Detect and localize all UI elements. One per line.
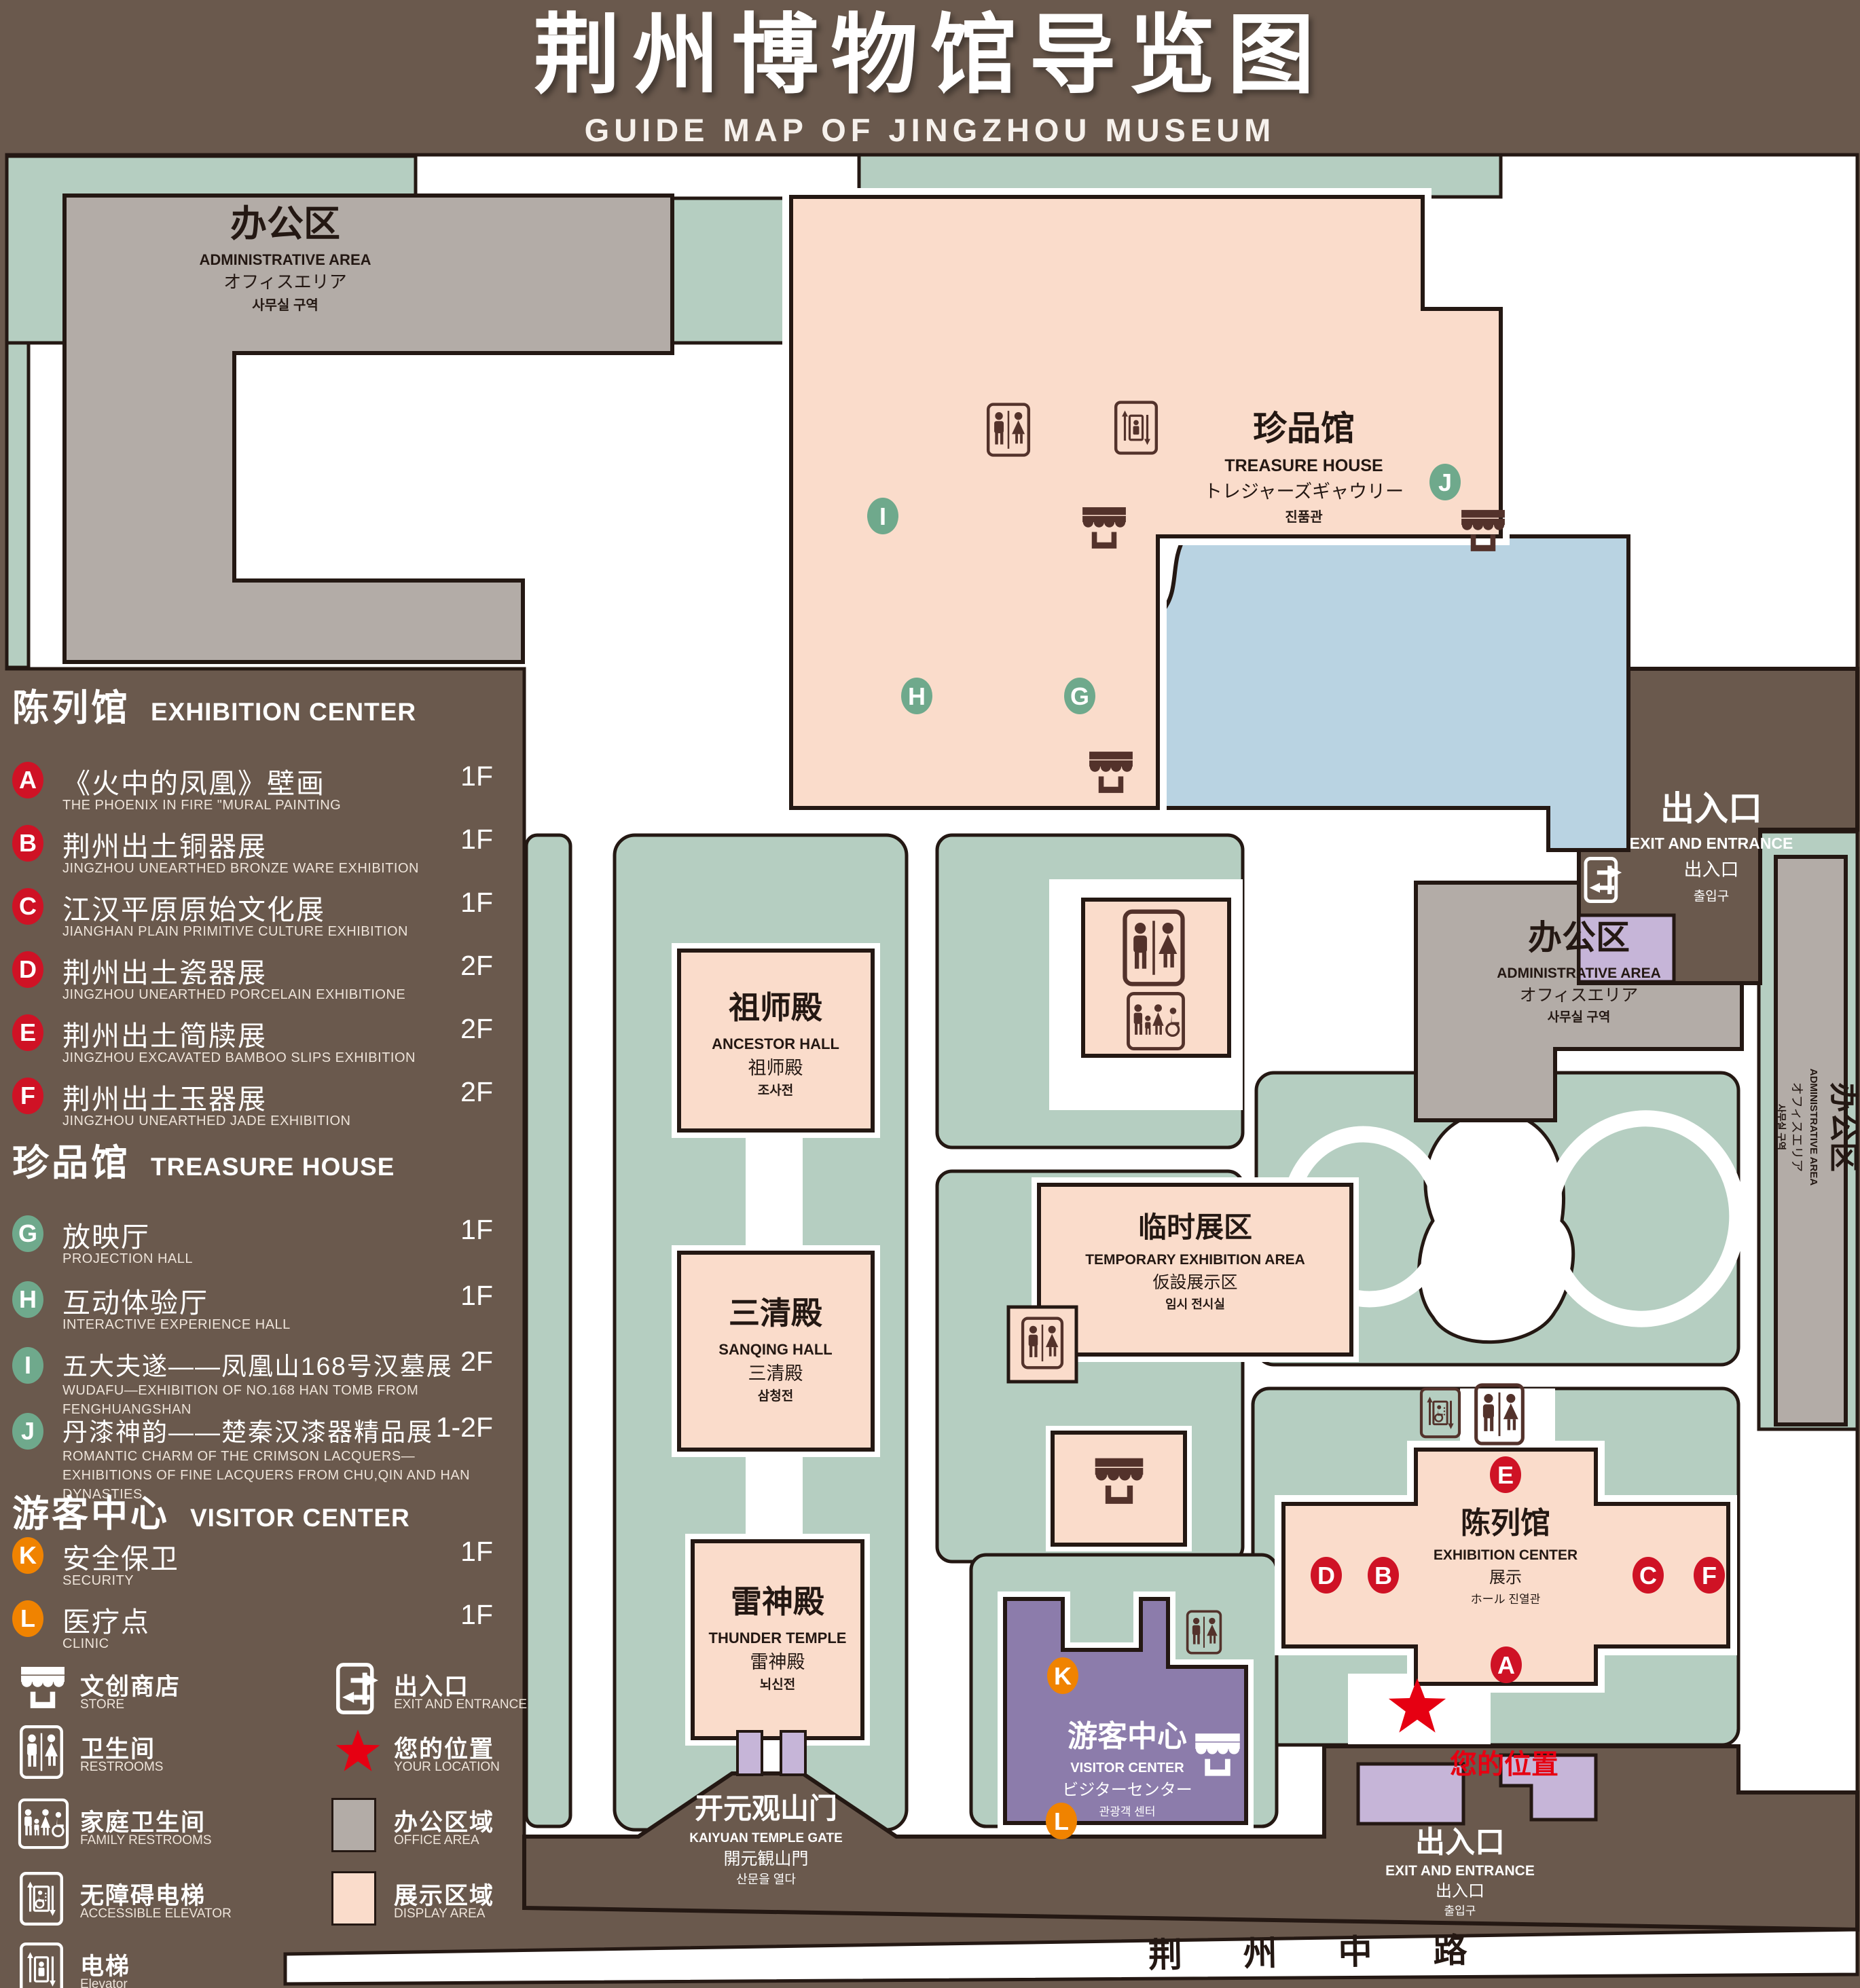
badge-l: L [12, 1600, 43, 1637]
legend-item-e: E 荆州出土简牍展 2F JINGZHOU EXCAVATED BAMBOO S… [12, 1013, 503, 1074]
legend-item-a: A 《火中的凤凰》壁画 1F THE PHOENIX IN FIRE "MURA… [12, 760, 503, 822]
elevator-icon [19, 1942, 64, 1988]
svg-text:B: B [1374, 1562, 1392, 1589]
svg-text:I: I [879, 502, 886, 530]
svg-text:임시 전시실: 임시 전시실 [1165, 1297, 1225, 1311]
svg-text:三清殿: 三清殿 [748, 1363, 803, 1384]
svg-text:トレジャーズギャウリー: トレジャーズギャウリー [1204, 481, 1404, 502]
svg-text:K: K [1054, 1662, 1072, 1690]
legend-icon-row-3: 家庭卫生间 FAMILY RESTROOMS 办公区域 OFFICE AREA [12, 1798, 515, 1866]
legend-item-b: B 荆州出土铜器展 1F JINGZHOU UNEARTHED BRONZE W… [12, 824, 503, 885]
svg-text:雷神殿: 雷神殿 [731, 1584, 824, 1619]
badge-j: J [1429, 464, 1461, 500]
svg-text:祖师殿: 祖师殿 [748, 1058, 803, 1078]
badge-c: C [12, 888, 43, 925]
svg-text:祖师殿: 祖师殿 [729, 990, 822, 1025]
svg-text:开元观山门: 开元观山门 [695, 1792, 837, 1824]
svg-text:출입구: 출입구 [1694, 889, 1729, 904]
legend-accessible-elevator: 无障碍电梯 ACCESSIBLE ELEVATOR [12, 1871, 311, 1939]
svg-text:SANQING HALL: SANQING HALL [718, 1341, 832, 1358]
badge-h: H [12, 1281, 43, 1318]
restroom-icon [19, 1725, 64, 1780]
legend-item-g: G 放映厅 1F PROJECTION HALL [12, 1214, 503, 1275]
legend-item-l: L 医疗点 1F CLINIC [12, 1599, 503, 1660]
guide-map-poster: 荆州博物馆导览图 GUIDE MAP OF JINGZHOU MUSEUM [0, 0, 1860, 1988]
badge-i: I [12, 1347, 43, 1384]
svg-text:出入口: 出入口 [1660, 790, 1762, 828]
accessible-elevator-icon [19, 1871, 64, 1926]
temporary-hall [1039, 1185, 1351, 1355]
badge-e: E [12, 1014, 43, 1051]
legend-item-i: I 五大夫遂——凤凰山168号汉墓展 2F WUDAFU—EXHIBITION … [12, 1346, 503, 1407]
display-area-swatch [331, 1871, 376, 1926]
legend-icon-row-2: 卫生间 RESTROOMS 您的位置 YOUR LOCATION [12, 1725, 515, 1792]
legend-display-area: 展示区域 DISPLAY AREA [326, 1871, 516, 1939]
svg-text:EXIT AND ENTRANCE: EXIT AND ENTRANCE [1385, 1863, 1535, 1879]
legend-your-location: 您的位置 YOUR LOCATION [326, 1725, 516, 1792]
badge-k: K [12, 1537, 43, 1574]
svg-text:J: J [1438, 468, 1452, 496]
legend-item-j: J 丹漆神韵——楚秦汉漆器精品展 1-2F ROMANTIC CHARM OF … [12, 1412, 503, 1473]
svg-text:E: E [1497, 1461, 1514, 1489]
svg-text:办公区: 办公区 [1528, 919, 1630, 957]
svg-text:관광객 센터: 관광객 센터 [1099, 1805, 1156, 1818]
family-restroom-icon [18, 1798, 69, 1849]
your-location-star [334, 1729, 382, 1773]
svg-text:ANCESTOR HALL: ANCESTOR HALL [712, 1035, 839, 1052]
svg-text:THUNDER TEMPLE: THUNDER TEMPLE [709, 1630, 847, 1646]
svg-text:조사전: 조사전 [758, 1083, 793, 1098]
svg-text:ADMINISTRATIVE AREA: ADMINISTRATIVE AREA [1808, 1069, 1819, 1186]
legend-icon-row-1: 文创商店 STORE 出入口 EXIT AND ENTRANCE [12, 1662, 515, 1730]
svg-text:出入口: 出入口 [1415, 1826, 1505, 1859]
legend-exit: 出入口 EXIT AND ENTRANCE [326, 1662, 516, 1730]
legend-item-d: D 荆州出土瓷器展 2F JINGZHOU UNEARTHED PORCELAI… [12, 950, 503, 1011]
legend-section-treasure: 珍品馆TREASURE HOUSE [12, 1133, 395, 1186]
legend-restrooms: 卫生间 RESTROOMS [12, 1725, 311, 1792]
svg-text:出入口: 出入口 [1436, 1882, 1484, 1900]
legend-item-c: C 江汉平原原始文化展 1F JIANGHAN PLAIN PRIMITIVE … [12, 887, 503, 948]
your-location-label: 您的位置 [1450, 1750, 1558, 1780]
svg-text:L: L [1054, 1807, 1069, 1835]
badge-c: C [1633, 1557, 1664, 1594]
badge-h: H [901, 678, 932, 714]
svg-text:TREASURE HOUSE: TREASURE HOUSE [1224, 456, 1383, 475]
svg-text:산문을 열다: 산문을 열다 [736, 1873, 796, 1886]
svg-text:뇌신전: 뇌신전 [760, 1677, 795, 1692]
svg-text:仮設展示区: 仮設展示区 [1152, 1273, 1237, 1292]
svg-text:진품관: 진품관 [1285, 509, 1323, 525]
svg-text:F: F [1702, 1562, 1717, 1589]
svg-text:開元観山門: 開元観山門 [723, 1849, 808, 1869]
svg-text:사무실 구역: 사무실 구역 [1548, 1010, 1611, 1025]
svg-text:オフィスエリア: オフィスエリア [1789, 1082, 1804, 1173]
svg-text:H: H [908, 682, 926, 710]
svg-text:D: D [1317, 1562, 1335, 1589]
legend-icon-row-5: 电梯 Elevator [12, 1942, 515, 1988]
svg-text:TEMPORARY EXHIBITION AREA: TEMPORARY EXHIBITION AREA [1085, 1252, 1305, 1268]
road-label: 荆 州 中 路 [1148, 1931, 1493, 1974]
legend-elevator: 电梯 Elevator [12, 1942, 311, 1988]
gate-pillar-east [781, 1731, 805, 1775]
corridor-2 [746, 1446, 803, 1545]
legend-item-k: K 安全保卫 1F SECURITY [12, 1536, 503, 1597]
badge-i: I [867, 498, 898, 534]
svg-text:雷神殿: 雷神殿 [750, 1652, 805, 1672]
legend-section-exhibition: 陈列馆EXHIBITION CENTER [12, 678, 416, 731]
badge-a: A [1491, 1646, 1522, 1683]
legend-office-area: 办公区域 OFFICE AREA [326, 1798, 516, 1866]
svg-text:VISITOR CENTER: VISITOR CENTER [1070, 1761, 1184, 1775]
svg-text:ホール 진열관: ホール 진열관 [1471, 1593, 1541, 1606]
legend-icon-row-4: 无障碍电梯 ACCESSIBLE ELEVATOR 展示区域 DISPLAY A… [12, 1871, 515, 1939]
badge-f: F [1694, 1557, 1725, 1594]
store-icon [16, 1665, 69, 1712]
svg-text:展示: 展示 [1489, 1568, 1522, 1587]
badge-e: E [1490, 1456, 1521, 1493]
pond-lower [1148, 536, 1628, 850]
badge-b: B [1368, 1557, 1399, 1594]
svg-text:陈列馆: 陈列馆 [1461, 1507, 1550, 1540]
office-area-swatch [331, 1798, 376, 1852]
badge-l: L [1046, 1803, 1077, 1839]
svg-text:游客中心: 游客中心 [1068, 1720, 1187, 1753]
svg-text:EXHIBITION CENTER: EXHIBITION CENTER [1434, 1547, 1578, 1563]
svg-text:KAIYUAN TEMPLE GATE: KAIYUAN TEMPLE GATE [689, 1831, 843, 1845]
svg-text:G: G [1070, 682, 1089, 710]
corridor-1 [746, 1127, 803, 1256]
gate-pillar-west [737, 1731, 762, 1775]
badge-a: A [12, 762, 43, 798]
svg-text:出入口: 出入口 [1684, 860, 1739, 880]
legend-section-visitor: 游客中心VISITOR CENTER [12, 1484, 410, 1537]
svg-text:三清殿: 三清殿 [729, 1295, 822, 1331]
exit-icon [333, 1662, 386, 1715]
legend-family-restrooms: 家庭卫生间 FAMILY RESTROOMS [12, 1798, 311, 1866]
svg-text:출입구: 출입구 [1444, 1904, 1476, 1917]
svg-text:EXIT AND ENTRANCE: EXIT AND ENTRANCE [1630, 834, 1793, 852]
svg-text:ADMINISTRATIVE AREA: ADMINISTRATIVE AREA [1497, 965, 1661, 981]
legend-item-f: F 荆州出土玉器展 2F JINGZHOU UNEARTHED JADE EXH… [12, 1076, 503, 1137]
svg-text:삼청전: 삼청전 [758, 1388, 793, 1403]
svg-text:ビジターセンター: ビジターセンター [1062, 1781, 1192, 1799]
svg-text:사무실 구역: 사무실 구역 [1776, 1104, 1787, 1150]
store-kiosk [1053, 1433, 1185, 1545]
svg-text:珍品馆: 珍品馆 [1253, 409, 1355, 447]
svg-text:办公区: 办公区 [1827, 1082, 1860, 1172]
badge-f: F [12, 1078, 43, 1114]
legend-panel: 陈列馆EXHIBITION CENTER A 《火中的凤凰》壁画 1F THE … [0, 0, 523, 1988]
svg-text:C: C [1639, 1562, 1657, 1589]
legend-item-h: H 互动体验厅 1F INTERACTIVE EXPERIENCE HALL [12, 1280, 503, 1341]
gate-pad-south-1 [1358, 1764, 1463, 1824]
svg-text:临时展区: 临时展区 [1138, 1211, 1252, 1243]
green-left-strip [526, 835, 570, 1826]
badge-g: G [1064, 678, 1095, 714]
legend-store: 文创商店 STORE [12, 1662, 311, 1730]
svg-text:オフィスエリア: オフィスエリア [1520, 986, 1639, 1005]
badge-b: B [12, 825, 43, 862]
badge-j: J [12, 1413, 43, 1450]
badge-d: D [1311, 1557, 1342, 1594]
badge-k: K [1047, 1657, 1078, 1694]
svg-text:A: A [1497, 1651, 1515, 1679]
badge-d: D [12, 951, 43, 988]
badge-g: G [12, 1215, 43, 1252]
